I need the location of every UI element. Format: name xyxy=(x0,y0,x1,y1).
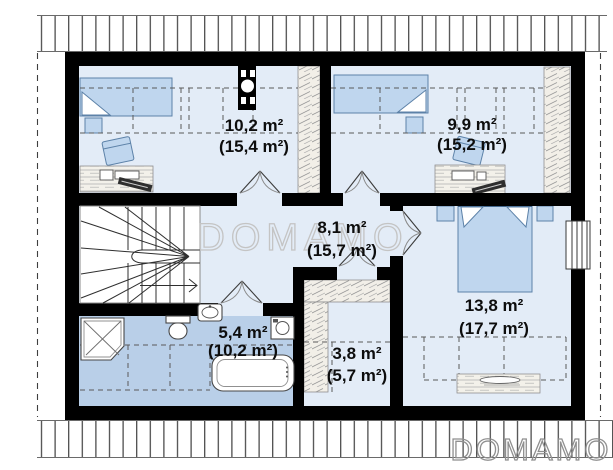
area-bedroom-top-right: 9,9 m² xyxy=(447,115,496,134)
nightstand-bed-left xyxy=(437,206,454,221)
wardrobe-divider xyxy=(298,66,320,193)
staircase xyxy=(80,206,200,303)
nightstand-right-room xyxy=(406,117,423,133)
window-right-wall xyxy=(566,221,590,269)
nightstand-bed-right xyxy=(537,206,553,221)
chimney xyxy=(238,66,256,110)
watermark-bottom-right: DOMAMO xyxy=(451,432,612,467)
area-total-wardrobe: (5,7 m²) xyxy=(327,366,387,385)
armchair xyxy=(102,136,134,165)
area-wardrobe: 3,8 m² xyxy=(332,344,381,363)
area-bathroom: 5,4 m² xyxy=(218,323,267,342)
floor-plan-drawing: DOMAMO DOMAMO 10,2 m² (15,4 m²) 9,9 m² (… xyxy=(0,0,613,470)
area-total-hall: (15,7 m²) xyxy=(307,241,377,260)
washing-machine xyxy=(271,317,294,339)
area-hall: 8,1 m² xyxy=(317,218,366,237)
area-total-bedroom-top-left: (15,4 m²) xyxy=(219,137,289,156)
nightstand-left-room xyxy=(85,118,102,133)
single-bed-left xyxy=(80,78,172,116)
area-total-bedroom-right: (17,7 m²) xyxy=(459,319,529,338)
wardrobe-closet-top xyxy=(304,280,390,302)
area-total-bedroom-top-right: (15,2 m²) xyxy=(437,135,507,154)
desk-left-room xyxy=(80,166,153,192)
floor-plan-page: DOMAMO DOMAMO 10,2 m² (15,4 m²) 9,9 m² (… xyxy=(0,0,613,470)
desk-right-room xyxy=(435,165,506,195)
area-total-bathroom: (10,2 m²) xyxy=(208,341,278,360)
wardrobe-right-bedroom xyxy=(544,67,570,193)
bathtub xyxy=(212,355,294,391)
double-bed xyxy=(458,203,532,292)
roof-eave-top xyxy=(37,15,607,52)
area-bedroom-right: 13,8 m² xyxy=(465,296,524,315)
shower xyxy=(81,318,124,360)
sink xyxy=(198,304,222,321)
single-bed-right xyxy=(334,75,428,113)
dresser xyxy=(457,374,540,393)
area-bedroom-top-left: 10,2 m² xyxy=(225,116,284,135)
wardrobe-closet-left xyxy=(304,302,328,392)
